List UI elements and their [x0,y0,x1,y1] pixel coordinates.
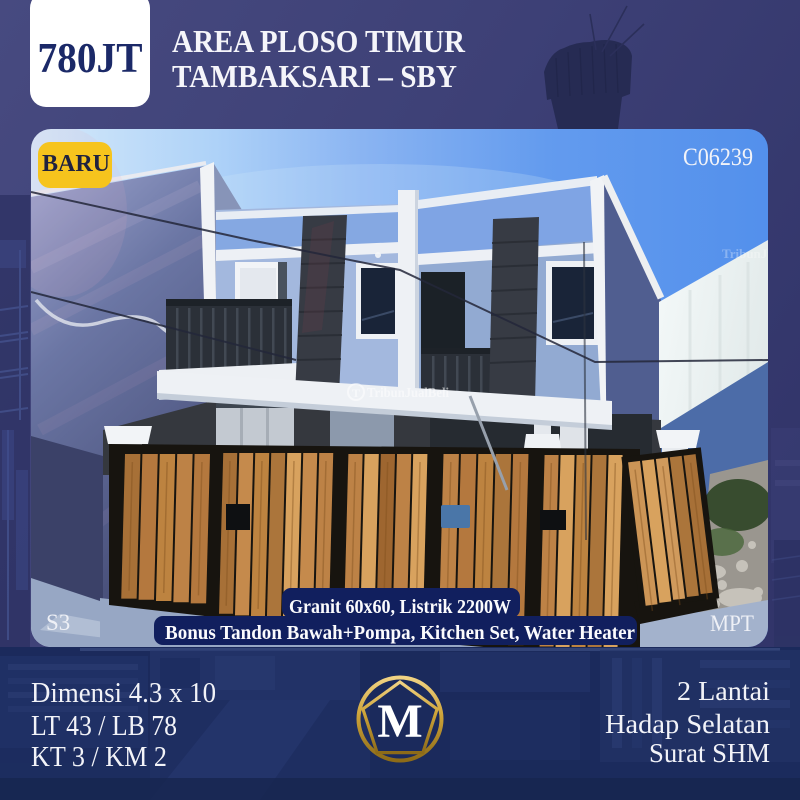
svg-text:TribunJualBeli: TribunJualBeli [367,386,449,401]
svg-text:780JT: 780JT [38,36,143,82]
svg-text:BARU: BARU [42,151,110,177]
svg-text:TAMBAKSARI – SBY: TAMBAKSARI – SBY [172,58,457,94]
svg-text:MPT: MPT [710,611,754,636]
svg-text:2 Lantai: 2 Lantai [677,676,770,706]
svg-text:Bonus Tandon Bawah+Pompa, Kitc: Bonus Tandon Bawah+Pompa, Kitchen Set, W… [165,622,635,644]
svg-text:C06239: C06239 [683,144,753,171]
svg-text:KT 3 / KM 2: KT 3 / KM 2 [31,742,167,773]
svg-text:Granit 60x60, Listrik 2200W: Granit 60x60, Listrik 2200W [289,596,511,618]
svg-text:S3: S3 [46,610,70,635]
svg-text:Hadap Selatan: Hadap Selatan [605,709,771,739]
svg-text:LT 43 / LB 78: LT 43 / LB 78 [31,711,177,742]
svg-text:M: M [377,695,422,748]
svg-text:Dimensi 4.3 x 10: Dimensi 4.3 x 10 [31,678,216,709]
svg-text:T: T [352,386,360,400]
svg-text:AREA PLOSO TIMUR: AREA PLOSO TIMUR [172,23,466,59]
svg-text:Surat SHM: Surat SHM [649,738,770,768]
